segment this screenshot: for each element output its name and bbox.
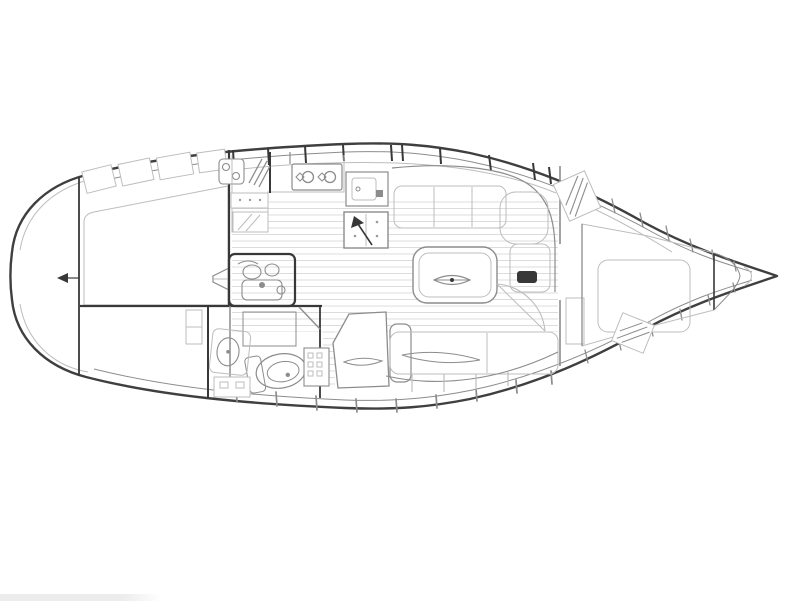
bottom-edge-artifact [0, 594, 162, 601]
galley-drawers [231, 193, 268, 232]
head-cabinet [214, 377, 250, 397]
nav-seat [390, 324, 411, 382]
salon-table [413, 247, 497, 303]
yacht-floorplan-svg [0, 0, 800, 601]
step-pad [517, 271, 537, 283]
stove-icon [292, 164, 342, 190]
sink-fridge-unit [346, 172, 388, 206]
boat-layout-canvas [0, 0, 800, 601]
v-berth-step [566, 298, 584, 344]
companionway-steps [344, 212, 388, 248]
